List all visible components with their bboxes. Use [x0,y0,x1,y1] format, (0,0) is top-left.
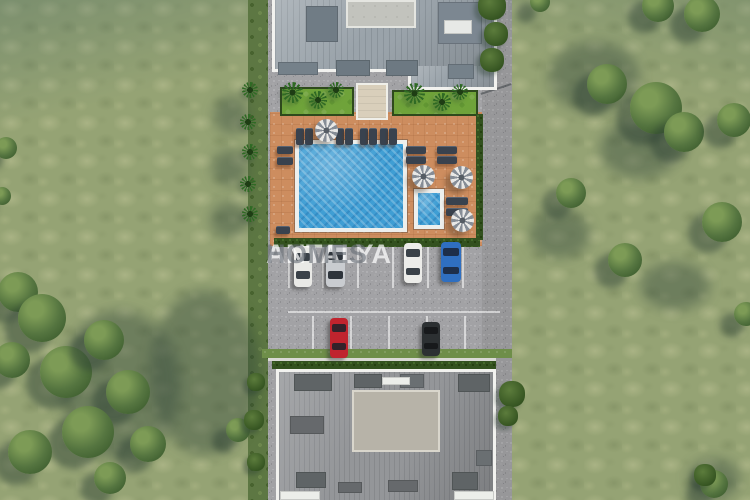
tree [130,426,166,462]
lawn-strip [262,349,512,358]
sun-lounger [276,226,290,234]
watermark: ANTALYAHOMES [266,240,482,270]
tree-shadow [210,202,248,238]
tree [664,112,704,152]
roof-dormer [354,374,382,388]
bottom-building-flat-roof [352,390,440,452]
roof-dormer [336,60,370,76]
hedge [272,361,496,369]
sun-lounger [305,128,313,145]
roof-dormer [280,491,320,500]
sun-lounger [446,197,468,205]
tree [556,178,586,208]
tree-shadow [530,210,590,258]
car-rear-window [424,343,438,349]
bush [694,464,716,486]
car-rear-window [296,271,310,278]
roof-dormer [452,472,478,490]
tree [8,430,52,474]
tree [84,320,124,360]
bush [484,22,508,46]
tree [94,462,126,494]
sun-lounger [360,128,368,145]
pool-umbrella [412,165,435,188]
curb [268,358,496,361]
tree [717,103,750,137]
red-sedan [330,318,348,358]
roof-dormer [290,416,324,434]
palm-tree [242,82,258,98]
tree-shadow [640,262,710,310]
sun-lounger [437,156,457,164]
palm-tree [309,91,327,109]
sun-lounger [406,146,426,154]
black-suv [422,322,440,356]
corner-shadow-left [0,0,248,170]
tree [587,64,627,104]
palm-tree [242,206,258,222]
roof-dormer [444,20,472,34]
sun-lounger [277,146,293,154]
tree [106,370,150,414]
tree [608,243,642,277]
pool-umbrella [451,209,474,232]
aerial-site-render: ANTALYAHOMES [0,0,750,500]
roof-dormer [278,62,318,75]
sun-lounger [345,128,353,145]
bush [499,381,525,407]
tree [40,346,92,398]
roof-dormer [296,472,326,488]
sun-lounger [369,128,377,145]
pool-umbrella [315,119,338,142]
palm-tree [242,144,258,160]
roof-dormer [294,374,332,391]
roof-dormer [338,482,362,493]
palm-tree [240,114,256,130]
palm-tree [328,82,344,98]
swimming-pool [295,140,407,232]
garden-walkway [356,83,388,120]
roof-dormer [454,491,494,500]
car-rear-window [332,343,346,350]
palm-tree [452,84,468,100]
sun-lounger [277,157,293,165]
palm-tree [404,83,425,104]
parking-line [288,311,500,313]
kids-pool [414,189,444,229]
palm-tree [433,93,451,111]
bush [247,453,265,471]
hedge [476,114,483,240]
top-building-flat-roof [346,0,416,28]
sun-lounger [389,128,397,145]
roof-dormer [382,377,410,385]
roof-dormer [448,64,474,79]
roof-dormer [306,6,338,42]
bush [247,373,265,391]
roof-dormer [386,60,418,76]
roof-dormer [388,480,418,492]
car-rear-window [328,271,343,279]
sun-lounger [406,156,426,164]
car-windshield [424,327,438,334]
roof-dormer [458,374,490,392]
sun-lounger [437,146,457,154]
tree [702,202,742,242]
pool-umbrella [450,166,473,189]
palm-tree [240,176,256,192]
bush [244,410,264,430]
watermark-text-homes: HOMES [266,240,368,268]
roof-dormer [476,450,492,466]
car-windshield [332,324,346,332]
tree [62,406,114,458]
sun-lounger [380,128,388,145]
palm-tree [282,82,303,103]
bush [480,48,504,72]
sun-lounger [296,128,304,145]
tree [18,294,66,342]
bush [498,406,518,426]
